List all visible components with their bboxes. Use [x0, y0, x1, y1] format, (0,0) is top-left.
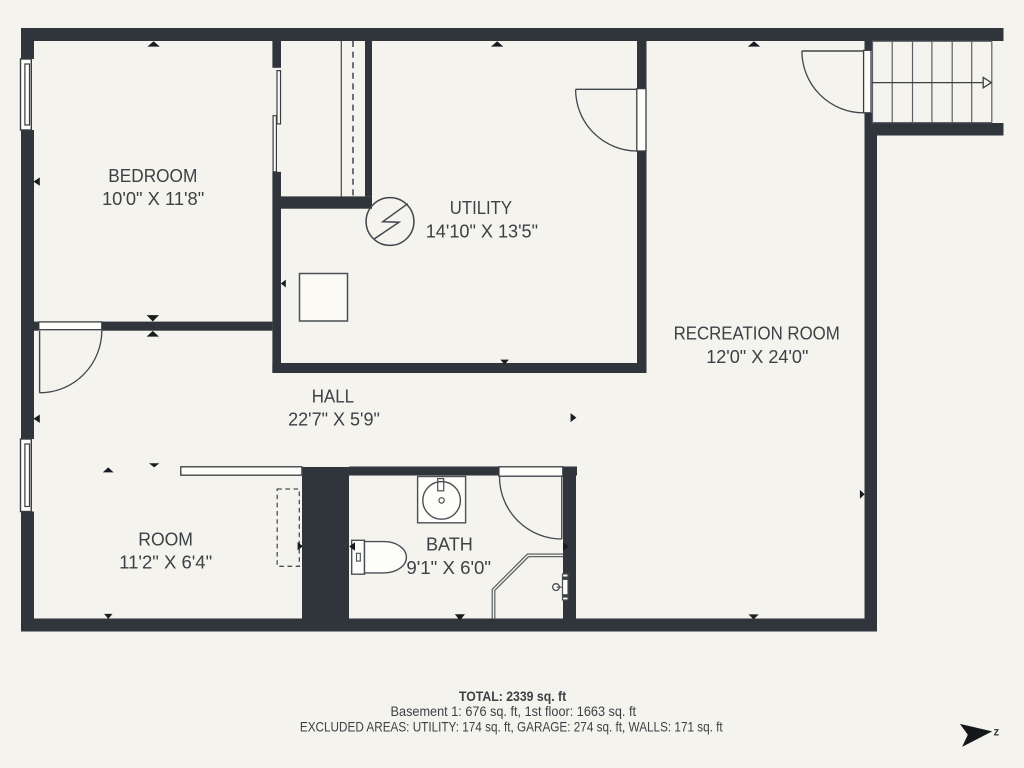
svg-text:HALL: HALL: [312, 385, 354, 406]
svg-text:9'1" X 6'0": 9'1" X 6'0": [406, 557, 491, 578]
svg-text:TOTAL: 2339 sq. ft: TOTAL: 2339 sq. ft: [459, 689, 567, 704]
svg-text:z: z: [994, 727, 1000, 739]
svg-text:12'0" X 24'0": 12'0" X 24'0": [706, 346, 808, 367]
svg-text:EXCLUDED AREAS: UTILITY: 174 s: EXCLUDED AREAS: UTILITY: 174 sq. ft, GAR…: [300, 719, 723, 734]
svg-text:BEDROOM: BEDROOM: [108, 165, 197, 186]
svg-text:14'10" X 13'5": 14'10" X 13'5": [426, 220, 538, 241]
svg-text:ROOM: ROOM: [138, 528, 193, 549]
svg-text:10'0" X 11'8": 10'0" X 11'8": [102, 188, 204, 209]
svg-text:Basement 1: 676 sq. ft, 1st fl: Basement 1: 676 sq. ft, 1st floor: 1663 …: [391, 704, 637, 719]
svg-text:UTILITY: UTILITY: [450, 197, 512, 218]
svg-text:RECREATION ROOM: RECREATION ROOM: [674, 323, 840, 344]
svg-text:11'2" X 6'4": 11'2" X 6'4": [119, 552, 212, 573]
svg-text:22'7" X 5'9": 22'7" X 5'9": [288, 409, 380, 430]
svg-text:BATH: BATH: [426, 534, 473, 555]
